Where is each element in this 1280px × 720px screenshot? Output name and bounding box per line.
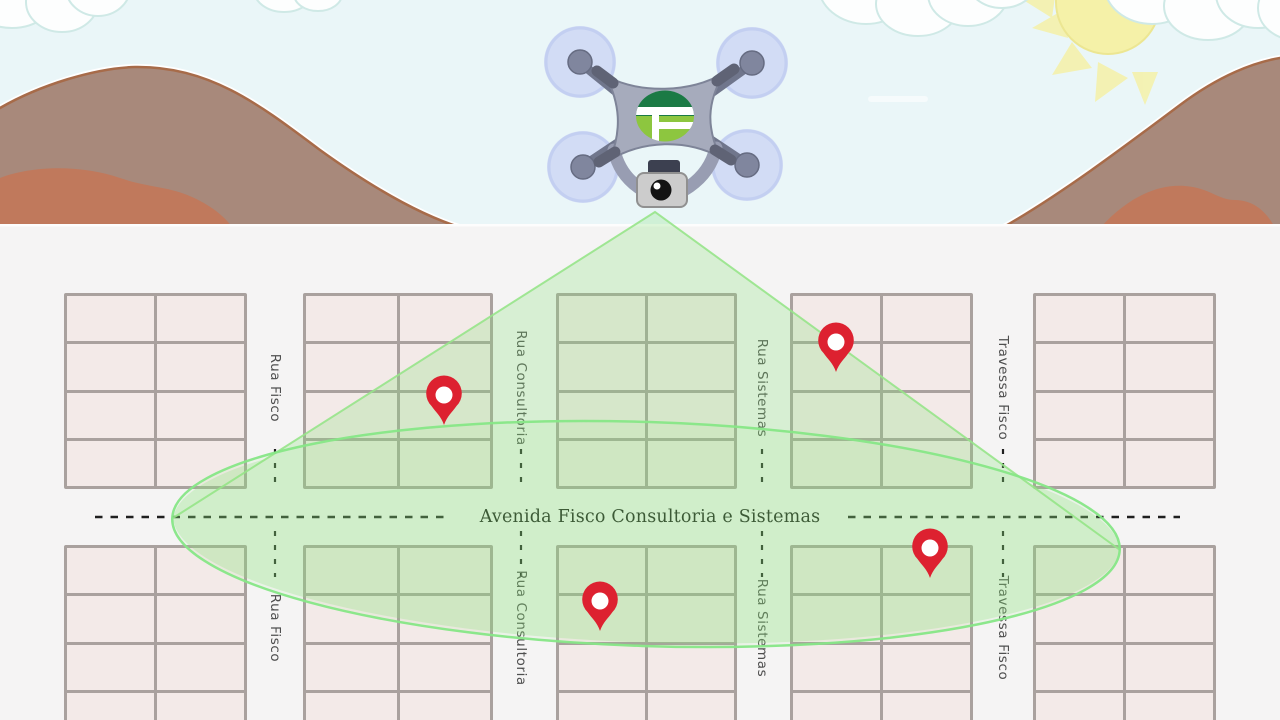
drone-camera xyxy=(637,173,687,207)
drone-layer xyxy=(0,0,1280,720)
drone xyxy=(544,26,788,207)
drone-city-illustration: Rua Fisco Rua Consultoria Rua Sistemas T… xyxy=(0,0,1280,720)
